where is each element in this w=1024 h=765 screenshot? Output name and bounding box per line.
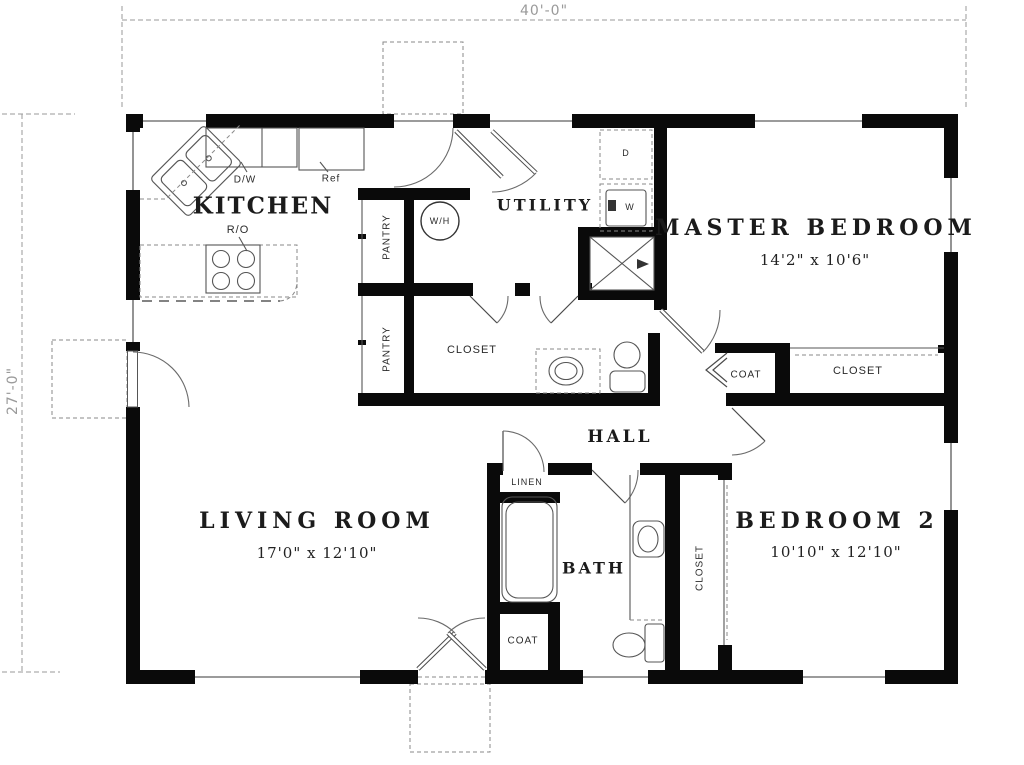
side-porch (52, 340, 127, 418)
closet-label-hall-closet: CLOSET (447, 344, 497, 356)
powder-door-leaf (551, 296, 578, 323)
closet-label-linen: LINEN (511, 477, 543, 487)
burner (213, 273, 230, 290)
linen-door-arc (503, 431, 544, 472)
powder-sink (549, 357, 583, 385)
closet-label-master-closet: CLOSET (833, 365, 883, 377)
burner (238, 273, 255, 290)
room-label-hall: HALL (587, 427, 652, 447)
side-entry-door-arc (133, 352, 189, 407)
floor-plan: 40'-0" 27'-0" KITCHEN UTILITY MASTER BED… (0, 0, 1024, 765)
closet-label-pantry-upper: PANTRY (382, 214, 393, 260)
room-size-living-room: 17'0" x 12'10" (257, 544, 378, 562)
bathtub (502, 497, 557, 602)
room-size-master-bedroom: 14'2" x 10'6" (760, 251, 870, 269)
room-size-bedroom-2: 10'10" x 12'10" (770, 543, 901, 561)
burner (238, 251, 255, 268)
closet-label-entry-coat: COAT (507, 636, 538, 647)
refrigerator (299, 128, 364, 170)
bath-toilet-tank (645, 624, 664, 662)
bedroom2-door-leaf (732, 408, 765, 441)
appliance-label-dishwasher: D/W (234, 175, 256, 186)
room-label-utility: UTILITY (497, 196, 593, 215)
coat-bifold-door (706, 353, 727, 387)
access-arrow-icon (637, 259, 649, 269)
room-label-master-bedroom: MASTER BEDROOM (655, 215, 977, 241)
side-entry-door-leaf (128, 351, 138, 407)
bath-toilet-bowl (613, 633, 645, 657)
bedroom2-door-arc (732, 441, 765, 455)
powder-fixtures (536, 342, 645, 393)
powder-toilet-bowl (614, 342, 640, 368)
room-label-kitchen: KITCHEN (193, 193, 333, 220)
counter-edge (140, 125, 240, 199)
appliance-label-refrigerator: Ref (322, 174, 341, 185)
powder-vanity (536, 349, 600, 393)
top-porch (383, 42, 463, 114)
appliance-label-washer: W (625, 202, 635, 212)
burner (213, 251, 230, 268)
appliance-label-range-oven: R/O (227, 224, 250, 236)
room-label-living-room: LIVING ROOM (199, 508, 435, 534)
hall-closet-door-leaf (470, 296, 497, 323)
top-entry-door-arc (394, 128, 453, 187)
room-label-bedroom-2: BEDROOM 2 (735, 508, 938, 534)
appliance-label-dryer: D (622, 148, 630, 158)
closet-label-pantry-lower: PANTRY (382, 326, 393, 372)
bath-door-arc (625, 470, 638, 503)
closet-label-master-coat: COAT (730, 370, 761, 381)
floorplan-canvas (0, 0, 1024, 765)
appliance-label-water-heater: W/H (430, 216, 451, 226)
front-porch (410, 684, 490, 752)
height-dimension: 27'-0" (5, 367, 21, 415)
bath-door-leaf (592, 470, 625, 503)
washer-door-icon (608, 200, 616, 211)
closet-label-bedroom2-closet: CLOSET (695, 545, 706, 591)
width-dimension: 40'-0" (520, 3, 568, 19)
interior-walls (358, 128, 944, 672)
dimension-lines (2, 6, 966, 672)
powder-toilet-tank (610, 371, 645, 392)
room-label-bath: BATH (562, 559, 626, 578)
